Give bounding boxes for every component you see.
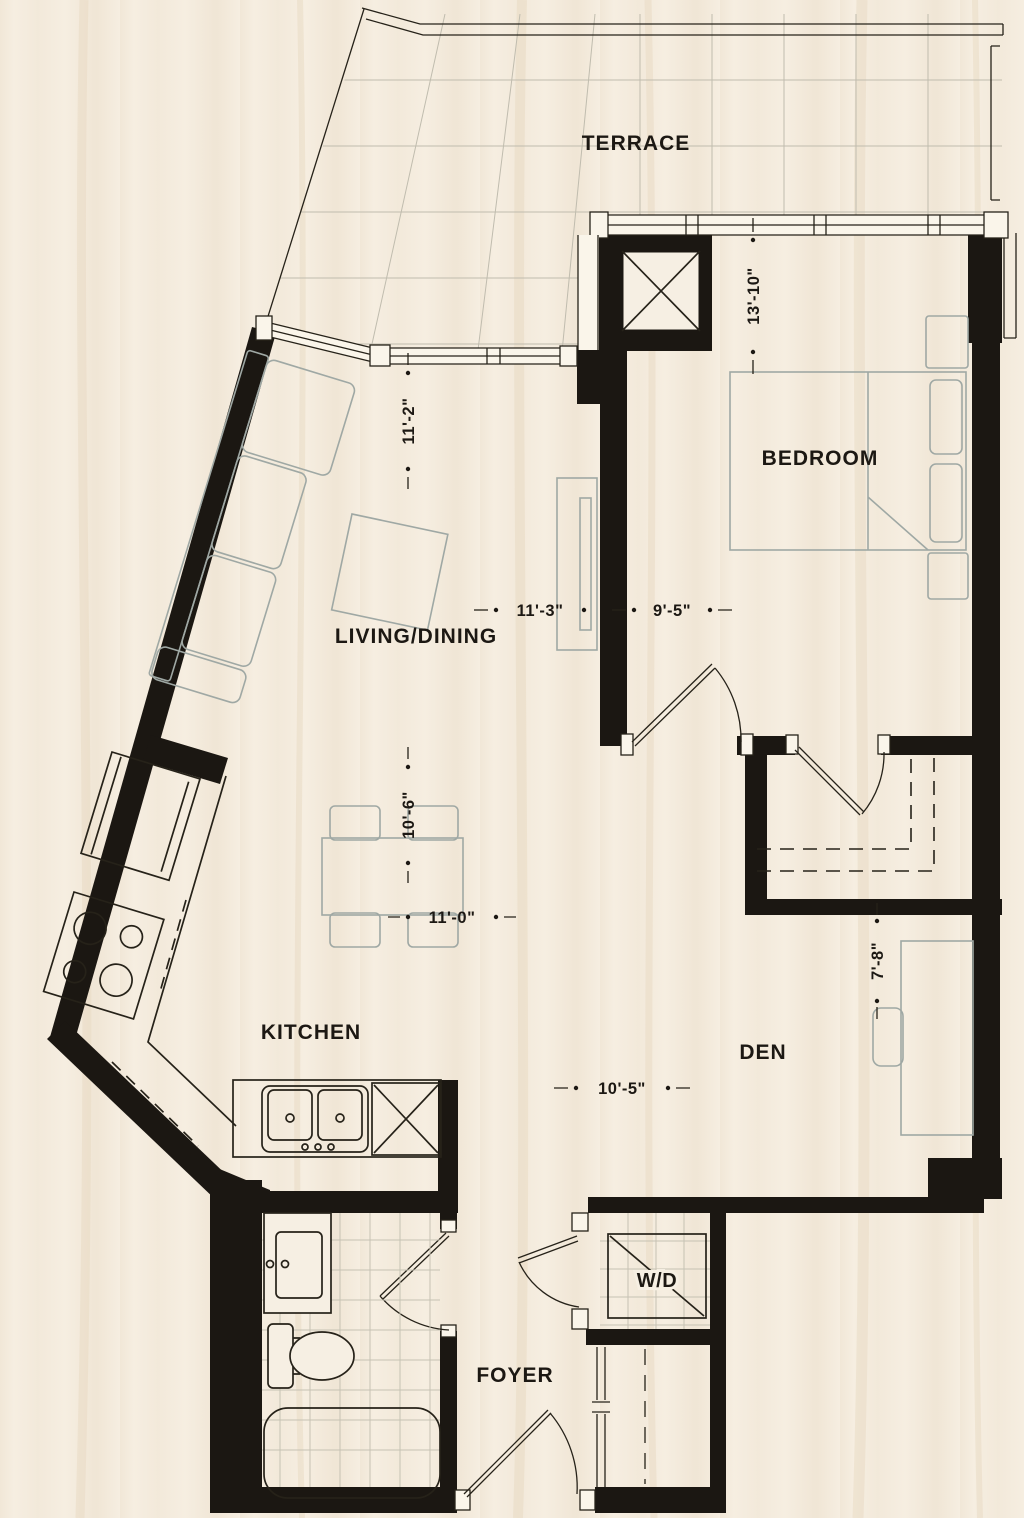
wd-east-wall — [710, 1197, 726, 1513]
walkin-closet-door — [786, 735, 890, 815]
nightstand — [928, 553, 968, 599]
east-wall-step — [928, 1158, 1002, 1199]
foyer-label: FOYER — [476, 1364, 553, 1387]
kitchen-label: KITCHEN — [261, 1021, 361, 1044]
bedroom-door — [621, 664, 753, 755]
toilet — [268, 1324, 354, 1388]
floor-plan-canvas: TERRACE — [0, 0, 1024, 1518]
bedroom-west-corner — [577, 350, 627, 404]
closet-west-wall — [745, 753, 767, 913]
svg-text:10'-5": 10'-5" — [598, 1080, 646, 1098]
bathroom-east-wall-lower — [440, 1331, 457, 1513]
pillow — [930, 464, 962, 542]
tv-console — [557, 478, 597, 650]
counter-edge — [148, 776, 236, 1126]
pillow — [930, 380, 962, 454]
living-furniture — [148, 350, 597, 947]
floor-plan-drawing: TERRACE — [0, 0, 1024, 1518]
bathroom-west-wall — [210, 1180, 262, 1513]
bedroom-label: BEDROOM — [762, 447, 879, 470]
walkin-closet — [757, 757, 934, 871]
east-wall-main — [972, 341, 1000, 1199]
wd-closet-divider-wall — [586, 1329, 712, 1345]
washer-dryer-closet: W/D — [600, 1213, 710, 1329]
svg-text:10'-6": 10'-6" — [400, 791, 418, 839]
den-furniture — [873, 941, 973, 1135]
bathroom-south-wall — [210, 1487, 455, 1513]
elevator-shaft — [622, 251, 700, 331]
bedroom-west-return — [578, 235, 599, 350]
kitchen-fixtures — [44, 752, 441, 1157]
svg-text:11'-3": 11'-3" — [517, 602, 564, 620]
terrace-label: TERRACE — [582, 132, 691, 155]
foyer-south-wall — [595, 1487, 726, 1513]
bedroom-west-wall — [600, 348, 627, 746]
vanity-sink — [264, 1213, 331, 1313]
bedroom-window — [590, 212, 1008, 238]
wd-label: W/D — [637, 1270, 677, 1292]
dim-bedroom-depth: 13'-10" — [745, 218, 763, 374]
living-window-horizontal — [370, 345, 577, 366]
svg-text:11'-2": 11'-2" — [400, 398, 418, 445]
closet-south-wall — [745, 899, 1002, 915]
desk — [901, 941, 973, 1135]
coffee-table — [332, 514, 448, 630]
svg-text:7'-8": 7'-8" — [869, 942, 887, 980]
den-south-wall — [588, 1197, 984, 1213]
wd-door — [518, 1213, 588, 1329]
den-label: DEN — [739, 1041, 786, 1064]
dim-den-width: 10'-5" — [554, 1080, 690, 1098]
bathroom — [262, 1213, 440, 1498]
lower-counter — [233, 1080, 441, 1157]
dim-dining-depth: 10'-6" — [400, 747, 418, 883]
coat-closet — [592, 1347, 645, 1487]
southwest-diagonal-wall — [47, 1021, 235, 1201]
dishwasher-x-icon — [374, 1085, 438, 1153]
svg-text:9'-5": 9'-5" — [653, 602, 691, 620]
kitchen-stub-wall — [143, 735, 228, 784]
nightstand — [926, 316, 968, 368]
dim-living-width: 11'-3" — [474, 602, 586, 620]
dim-living-depth: 11'-2" — [400, 353, 418, 489]
bathroom-door — [380, 1220, 456, 1337]
svg-text:11'-0": 11'-0" — [429, 909, 476, 927]
dim-bedroom-width: 9'-5" — [612, 602, 732, 620]
bathtub — [264, 1408, 440, 1498]
bedroom-south-wall-b — [881, 736, 973, 755]
bathroom-north-wall — [210, 1191, 458, 1213]
svg-text:13'-10": 13'-10" — [745, 267, 763, 324]
east-wall-upper — [968, 231, 1002, 343]
dim-den-depth: 7'-8" — [869, 903, 887, 1019]
living-dining-label: LIVING/DINING — [335, 625, 497, 648]
dishwasher — [372, 1083, 440, 1155]
room-labels: BEDROOM LIVING/DINING KITCHEN DEN FOYER — [261, 447, 879, 1387]
double-sink — [262, 1086, 368, 1152]
